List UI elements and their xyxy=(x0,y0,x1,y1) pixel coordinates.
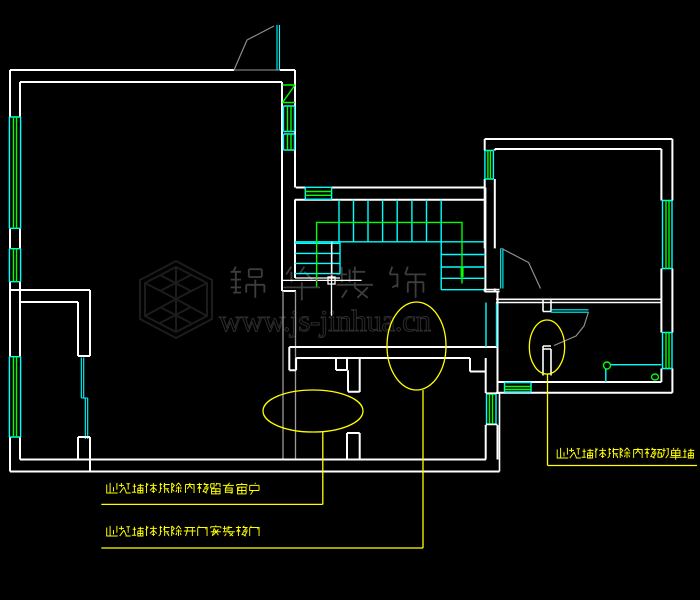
svg-text:www.js-jinhua.cn: www.js-jinhua.cn xyxy=(219,303,432,338)
